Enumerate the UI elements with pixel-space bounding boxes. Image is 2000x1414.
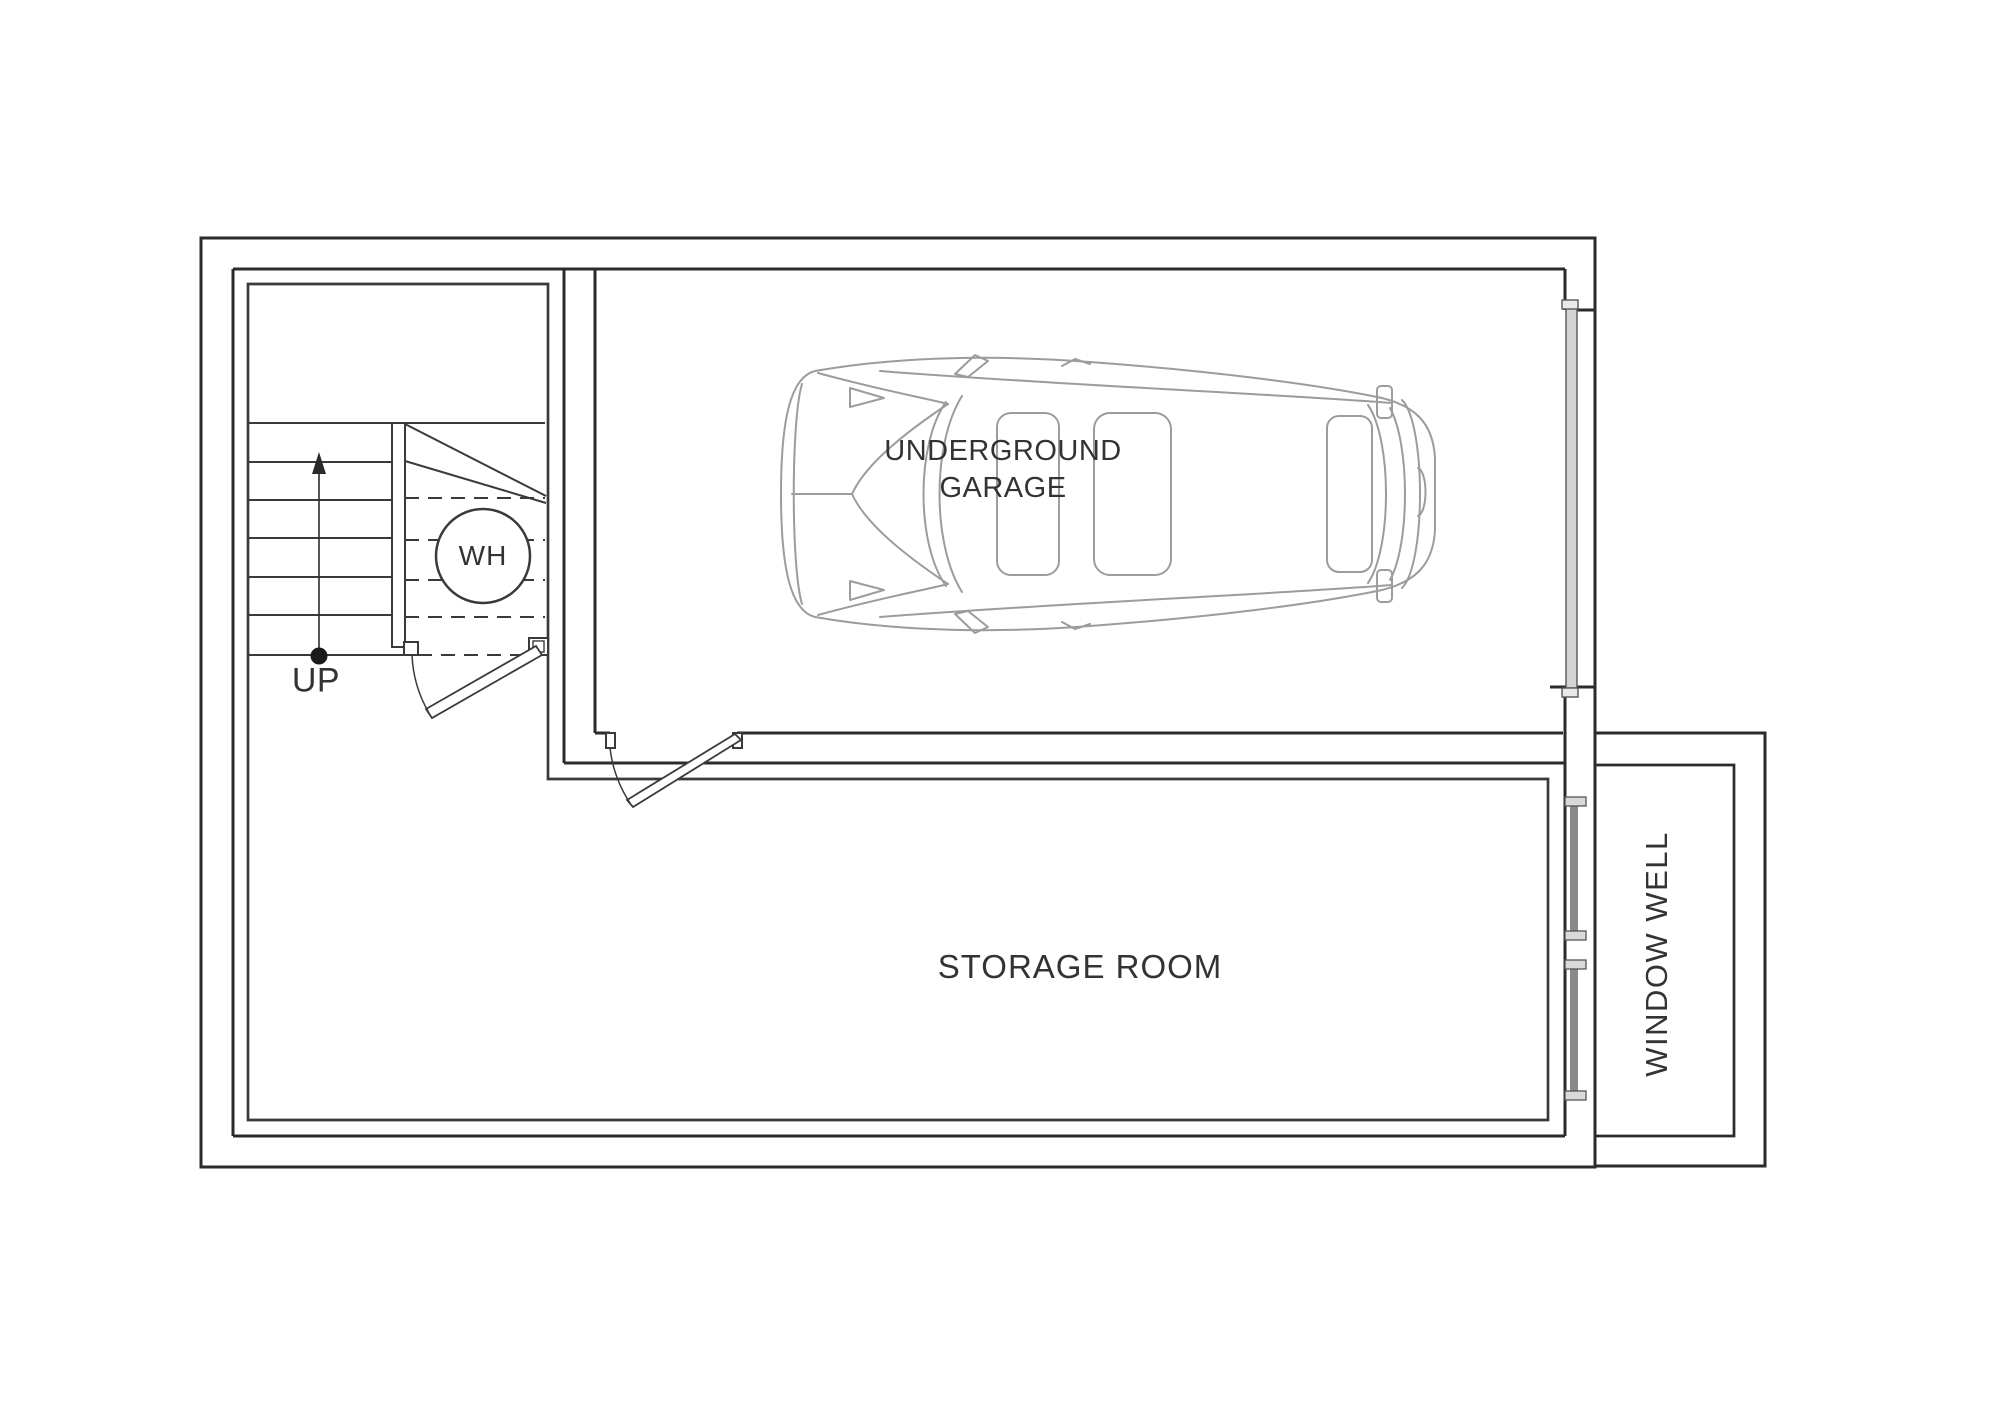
entry-door-swing-arc xyxy=(610,748,630,803)
garage-room-label-line2: GARAGE xyxy=(884,470,1122,507)
floor-plan-drawing xyxy=(0,0,2000,1414)
stair-divider-wall xyxy=(392,423,405,647)
window-glass xyxy=(1570,968,1578,1093)
up-arrow-icon xyxy=(311,452,328,665)
garage-entry-door xyxy=(606,733,742,807)
outer-wall xyxy=(201,238,1595,1167)
perimeter-walls xyxy=(201,238,1595,1167)
stairs-up-label: UP xyxy=(292,662,340,701)
closet-door-swing-arc xyxy=(412,655,429,713)
closet-door-panel xyxy=(426,646,542,718)
storage-room-label: STORAGE ROOM xyxy=(938,948,1223,986)
window-well-label: WINDOW WELL xyxy=(1639,831,1675,1077)
window-glass xyxy=(1570,805,1578,933)
garage-room-label: UNDERGROUND GARAGE xyxy=(884,433,1122,507)
closet-door xyxy=(404,638,548,718)
entry-door-panel xyxy=(627,734,741,807)
water-heater-label: WH xyxy=(459,540,508,572)
storage-windows xyxy=(1565,797,1586,1100)
window-well xyxy=(1595,733,1765,1166)
garage-room-label-line1: UNDERGROUND xyxy=(884,433,1122,470)
garage-door xyxy=(1562,300,1578,697)
floor-plan-canvas: UNDERGROUND GARAGE STORAGE ROOM WINDOW W… xyxy=(0,0,2000,1414)
garage-door-panel xyxy=(1566,304,1577,688)
